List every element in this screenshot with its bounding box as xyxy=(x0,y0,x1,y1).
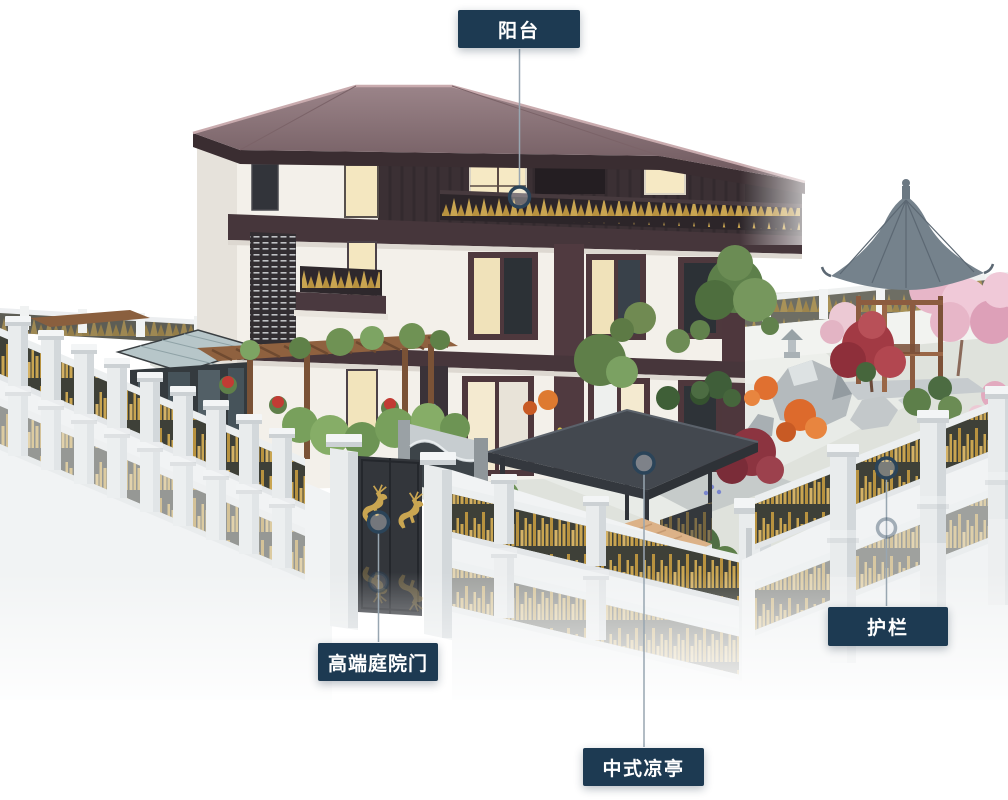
gate-marker-reflection xyxy=(370,573,388,591)
balcony-label[interactable]: 阳台 xyxy=(458,10,580,48)
balcony-marker[interactable] xyxy=(510,187,530,207)
gate-marker[interactable] xyxy=(369,512,389,532)
villa-garden-showcase: 阳台 高端庭院门 中式凉亭 护栏 xyxy=(0,0,1008,800)
guardrail-marker[interactable] xyxy=(877,458,897,478)
pavilion-label[interactable]: 中式凉亭 xyxy=(583,748,704,786)
guardrail-label[interactable]: 护栏 xyxy=(828,607,948,646)
guardrail-marker-reflection xyxy=(878,519,896,537)
courtyard-gate-label[interactable]: 高端庭院门 xyxy=(318,643,438,681)
callout-overlay xyxy=(0,0,1008,800)
pavilion-marker[interactable] xyxy=(634,453,654,473)
callout-lines xyxy=(379,49,887,747)
